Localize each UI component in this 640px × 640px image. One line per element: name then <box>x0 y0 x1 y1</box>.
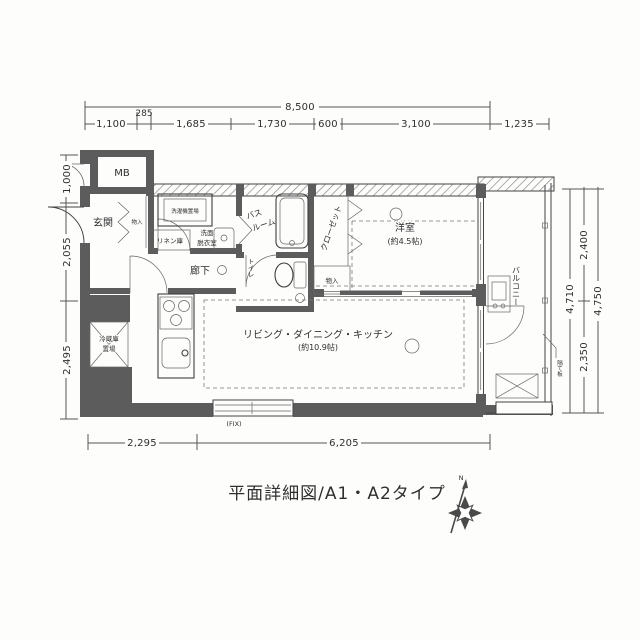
dim-left-0: 1,000 <box>62 164 73 194</box>
compass-north-label: N <box>459 474 464 482</box>
hallway-label: 廊下 <box>190 264 210 277</box>
closet: クローゼット <box>318 192 362 266</box>
dim-right-lower: 2,350 <box>579 342 590 372</box>
bath-label-1: バス <box>245 208 263 222</box>
water-heater <box>488 276 510 312</box>
dim-top-total: 8,500 <box>285 102 315 113</box>
floor-plan-page: MB <box>0 0 640 640</box>
washroom-door <box>158 219 190 251</box>
entrance-storage-label: 物入 <box>131 218 143 226</box>
washroom-label-1: 洗面 <box>201 228 215 237</box>
washroom-label-2: 脱衣室 <box>197 238 217 247</box>
hall-ldk-door <box>130 256 167 293</box>
fridge-label-1: 冷蔵庫 <box>99 334 119 343</box>
closet-label: クローゼット <box>318 204 344 253</box>
bedroom-sliding-door <box>314 289 482 297</box>
bathtub <box>276 194 308 248</box>
linen-label: リネン庫 <box>157 236 184 245</box>
dim-left-1: 2,055 <box>62 237 73 267</box>
bath-label-2: ルーム <box>251 217 276 233</box>
meter-box: MB <box>90 150 154 194</box>
balcony: バルコニー 隔て板 <box>486 183 563 416</box>
dim-top-3: 1,730 <box>257 119 287 130</box>
fix-window-label: (FIX) <box>226 420 241 428</box>
drawing-title: 平面詳細図/A1・A2タイプ <box>228 484 446 504</box>
entrance-label: 玄関 <box>93 216 113 229</box>
linen-closet: リネン庫 <box>150 230 190 250</box>
fridge-label-2: 置場 <box>103 344 117 353</box>
dim-top-5: 3,100 <box>401 119 431 130</box>
washing-machine-area: 洗濯機置場 <box>158 194 212 226</box>
floor-plan-drawing: MB <box>0 0 640 640</box>
mb-label: MB <box>114 168 130 179</box>
laundry-label: 洗濯機置場 <box>171 207 199 215</box>
ldk-label-1: リビング・ダイニング・キッチン <box>243 328 393 341</box>
dim-right-upper: 2,400 <box>579 230 590 260</box>
dim-bottom-1: 6,205 <box>329 438 359 449</box>
dim-left-2: 2,495 <box>62 345 73 375</box>
bedroom-label-1: 洋室 <box>395 221 415 234</box>
refrigerator-space: 冷蔵庫 置場 <box>90 322 128 367</box>
dim-bottom-0: 2,295 <box>127 438 157 449</box>
evacuation-hatch <box>496 374 538 398</box>
dim-right-inner: 4,710 <box>565 284 576 314</box>
bedroom-label-2: (約4.5帖) <box>388 236 423 246</box>
dim-top-4: 600 <box>318 119 338 130</box>
ldk-label-2: (約10.9帖) <box>298 342 338 352</box>
toilet-fixture <box>275 262 306 288</box>
dim-top-1: 285 <box>135 109 152 119</box>
partition-label: 隔て板 <box>556 359 563 378</box>
bedroom-window <box>478 198 484 284</box>
dim-top-0: 1,100 <box>96 119 126 130</box>
ldk-window <box>478 306 484 394</box>
interior-walls <box>90 186 314 312</box>
dropped-ceiling-lines <box>204 221 476 388</box>
toilet-label: トイレ <box>246 258 254 278</box>
washbasin <box>214 228 234 250</box>
bedroom-storage-label: 物入 <box>326 276 340 285</box>
dim-right-outer: 4,750 <box>593 286 604 316</box>
compass-rose: N <box>448 474 482 533</box>
balcony-label: バルコニー <box>512 266 521 306</box>
kitchen-counter <box>158 294 194 378</box>
fix-window: (FIX) <box>213 400 293 428</box>
dim-top-6: 1,235 <box>504 119 534 130</box>
dim-top-2: 1,685 <box>176 119 206 130</box>
